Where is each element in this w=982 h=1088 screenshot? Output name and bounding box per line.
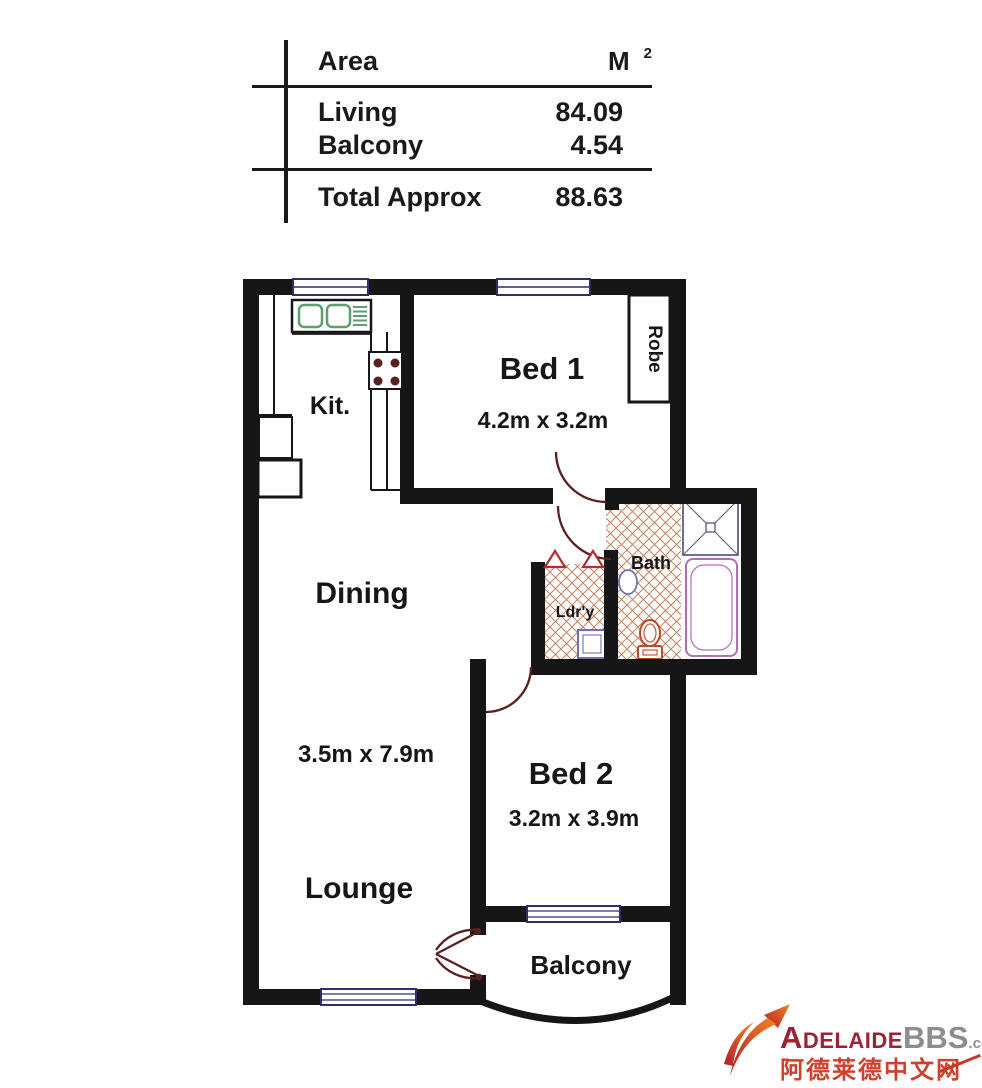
bathtub xyxy=(686,559,737,656)
room-label-bed2: Bed 2 xyxy=(529,756,613,791)
bed2-balcony-window xyxy=(527,906,620,922)
room-label-bed1: Bed 1 xyxy=(500,351,584,386)
room-label-lounge: Lounge xyxy=(305,872,413,905)
bed1-window xyxy=(497,279,590,295)
bed1-door-arc xyxy=(556,452,606,502)
balcony-double-door xyxy=(436,929,481,979)
kitchen-window xyxy=(293,279,368,295)
room-label-balcony: Balcony xyxy=(530,950,632,980)
room-dim-dining: 3.5m x 7.9m xyxy=(298,741,434,768)
stove xyxy=(369,352,402,389)
brand-tld: .com xyxy=(968,1035,982,1052)
shower xyxy=(683,500,738,555)
room-dim-bed1: 4.2m x 3.2m xyxy=(478,407,608,433)
washing-machine xyxy=(578,630,606,658)
room-label-dining: Dining xyxy=(315,577,408,610)
page: Area M2 Living 84.09 Balcony 4.54 Total … xyxy=(0,0,982,1088)
balcony-wall-arc xyxy=(478,998,672,1021)
room-label-bath: Bath xyxy=(631,553,671,573)
bed2-door-arc xyxy=(486,667,531,712)
room-label-robe: Robe xyxy=(644,325,665,373)
bath-door-arc xyxy=(558,506,611,559)
kitchen-sink xyxy=(292,300,371,332)
basin xyxy=(619,570,637,594)
brand-chinese: 阿德莱德中文网 xyxy=(780,1050,962,1085)
room-dim-bed2: 3.2m x 3.9m xyxy=(509,805,639,831)
room-label-laundry: Ldr'y xyxy=(556,604,595,621)
lounge-window xyxy=(321,989,416,1005)
floorplan-svg: Kit. Bed 1 4.2m x 3.2m Robe Dining 3.5m … xyxy=(0,0,982,1088)
toilet xyxy=(638,620,662,659)
room-label-kitchen: Kit. xyxy=(310,392,350,420)
doors xyxy=(436,452,611,979)
watermark-logo: AdelaideBBS.com 阿德莱德中文网 xyxy=(700,1000,982,1088)
